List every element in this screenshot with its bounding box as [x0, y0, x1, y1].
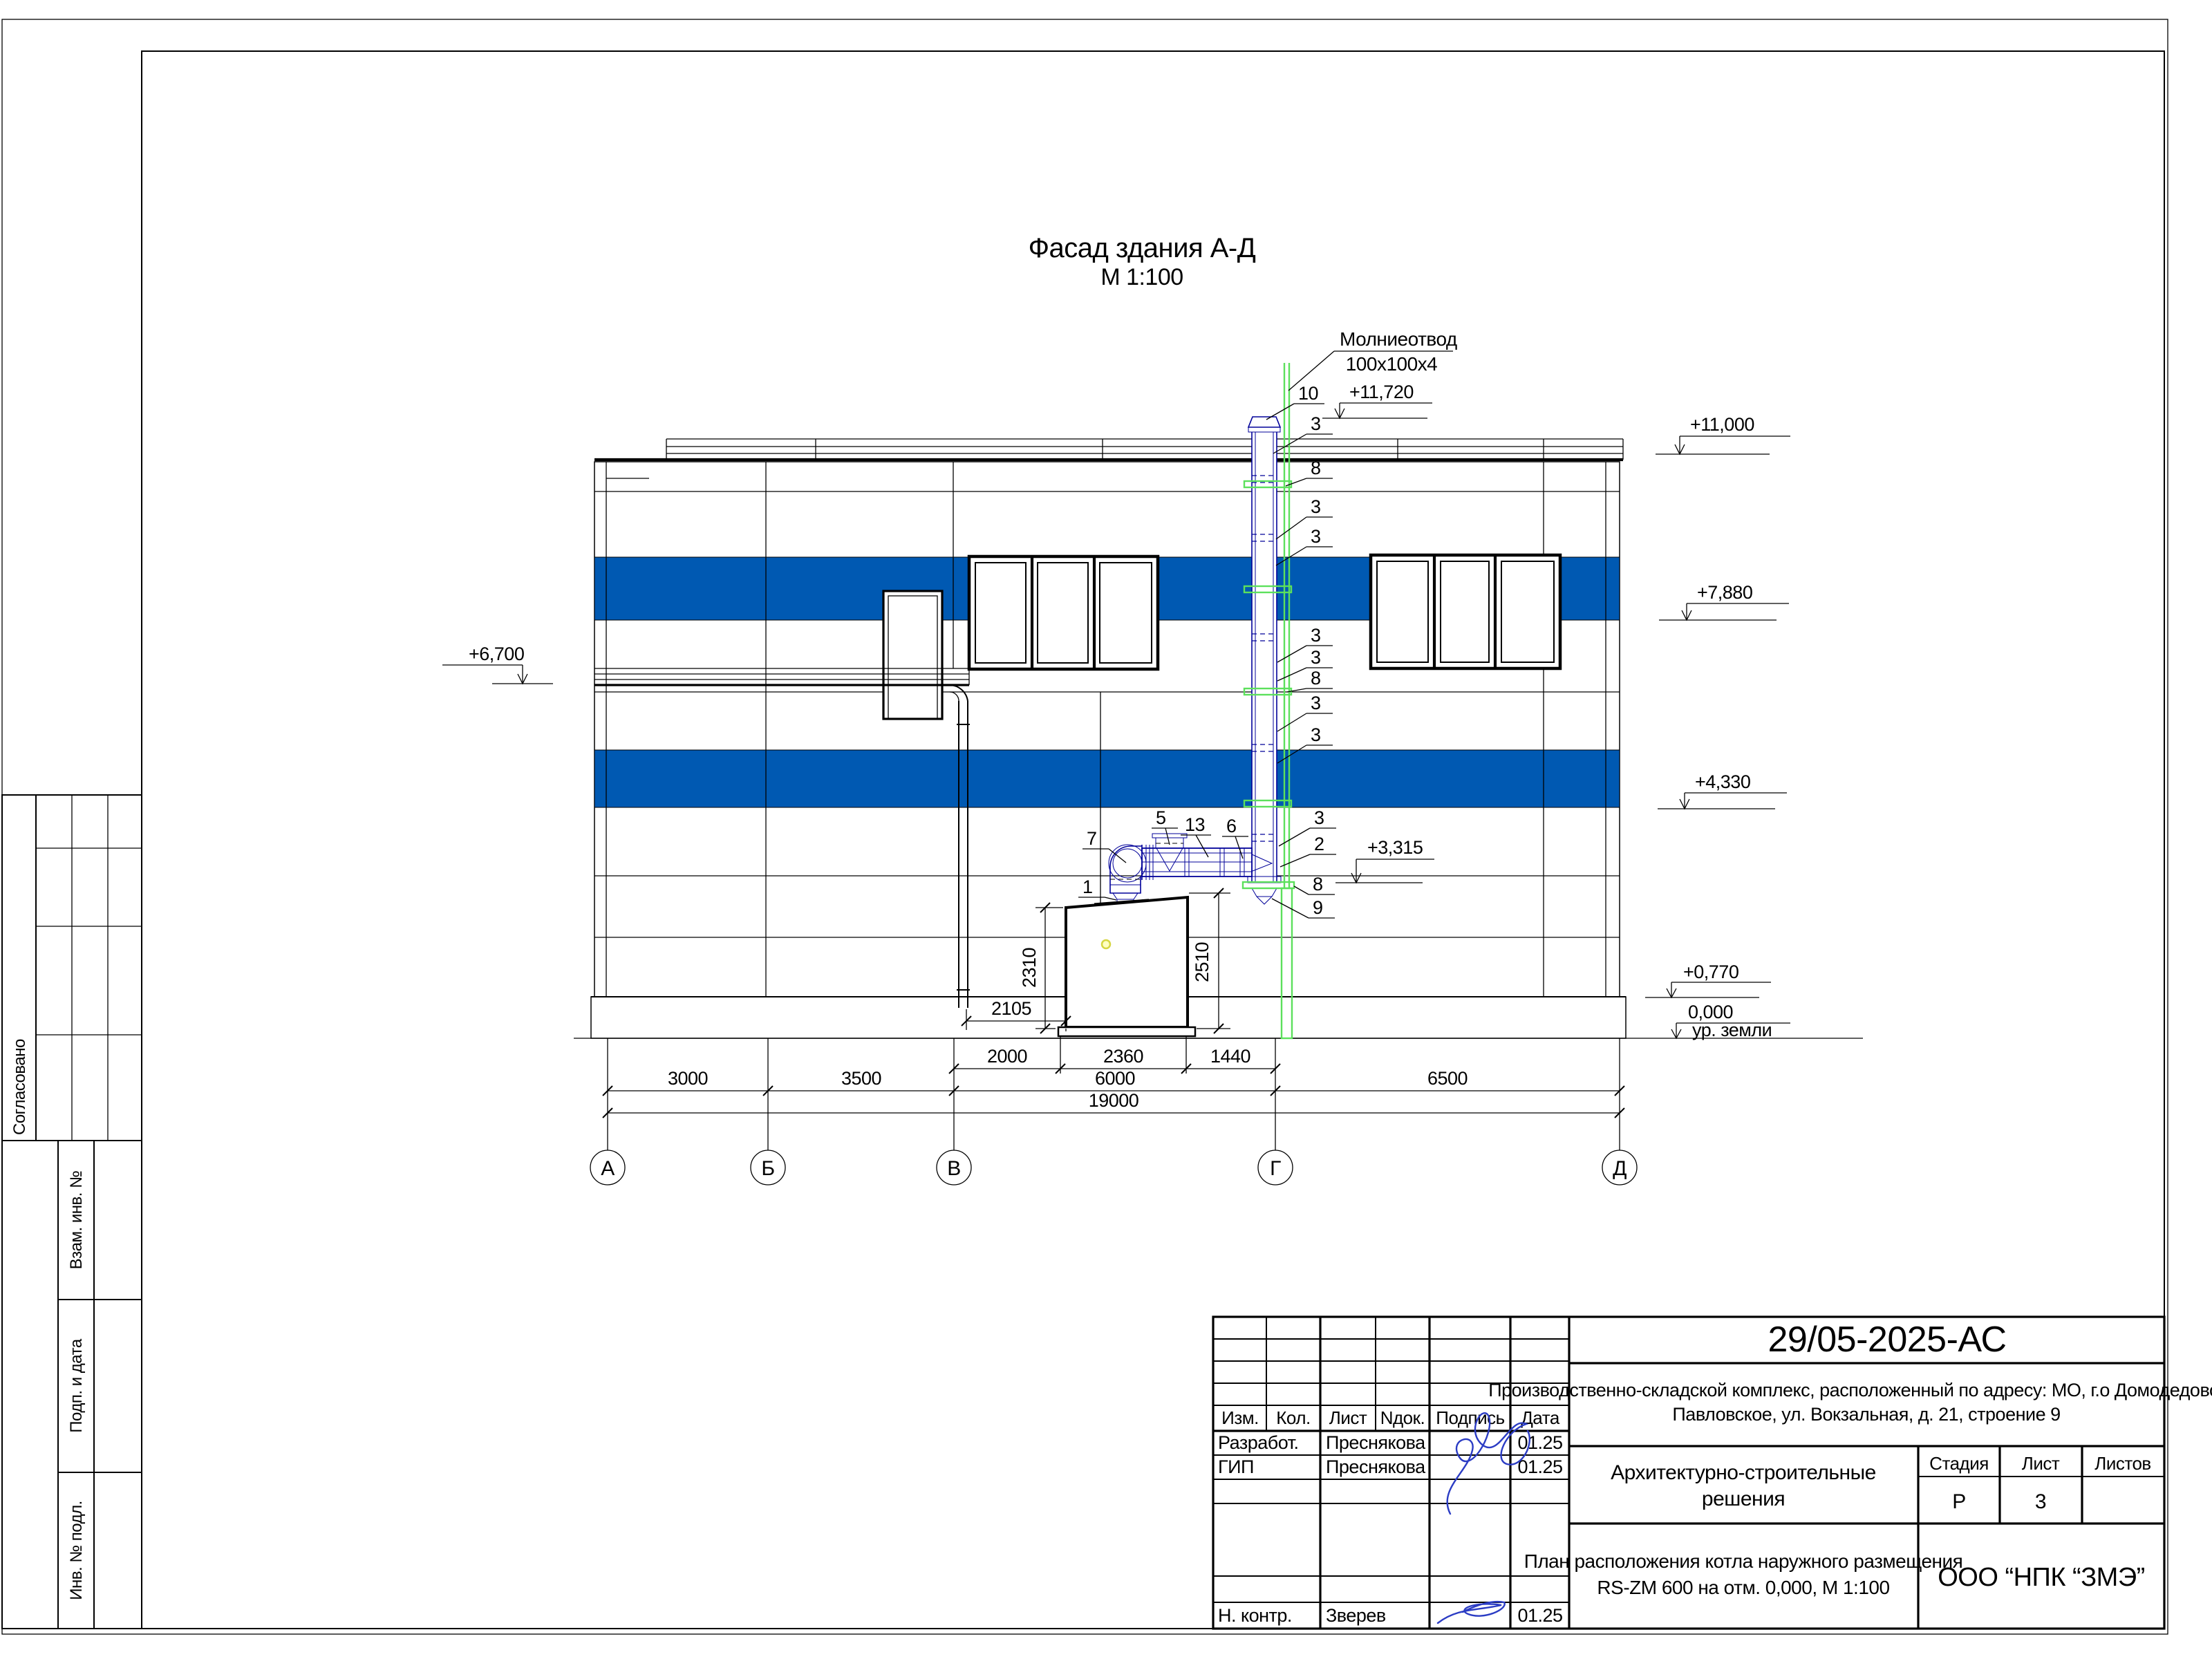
section-title-line2: решения	[1702, 1488, 1785, 1510]
elevation-canopy: +6,700	[442, 644, 553, 684]
side-stamp: Согласовано Взам. инв. № Подп. и дата Ин…	[2, 795, 142, 1629]
project-name-line2: Павловское, ул. Вокзальная, д. 21, строе…	[1672, 1404, 2060, 1425]
callout-label: 3	[1311, 625, 1321, 646]
elevation-roof: +11,000	[1656, 414, 1790, 454]
col-izm: Изм.	[1221, 1407, 1259, 1428]
axis-label-b: Б	[761, 1157, 774, 1180]
signer-date: 01.25	[1517, 1456, 1562, 1477]
ground-label: ур. земли	[1692, 1020, 1772, 1040]
callout-label: 10	[1298, 383, 1318, 404]
dim-value: 2360	[1103, 1046, 1143, 1067]
callout-label: 5	[1156, 807, 1166, 828]
elevation-value: +0,770	[1683, 962, 1738, 982]
callout-label: 3	[1311, 413, 1321, 434]
blue-band-lower	[594, 750, 1620, 807]
signer-date: 01.25	[1517, 1432, 1562, 1453]
elevation-value: +11,720	[1349, 382, 1414, 402]
callout-label: 3	[1311, 693, 1321, 713]
approved-label: Согласовано	[10, 1039, 29, 1135]
elevation-value: +4,330	[1695, 771, 1750, 792]
callout-label: 3	[1311, 647, 1321, 668]
col-list: Лист	[1329, 1407, 1367, 1428]
callout-label: 3	[1311, 526, 1321, 547]
window-group-1	[969, 556, 1158, 669]
drawing-sheet: Согласовано Взам. инв. № Подп. и дата Ин…	[0, 0, 2212, 1659]
dim-value: 2000	[987, 1046, 1027, 1067]
signer-name: Преснякова	[1326, 1432, 1426, 1453]
elevation-chimney-top: +11,720	[1322, 382, 1432, 418]
dim-value: 2105	[991, 998, 1031, 1019]
axis-label-a: А	[601, 1157, 615, 1180]
lightning-rod-label: Молниеотвод	[1340, 328, 1457, 350]
signer-name: Преснякова	[1326, 1456, 1426, 1477]
axis-label-v: В	[947, 1157, 961, 1180]
signer-role: Разработ.	[1218, 1432, 1299, 1453]
callout-label: 3	[1314, 807, 1324, 828]
signer-name: Зверев	[1326, 1605, 1386, 1626]
doc-number: 29/05-2025-АС	[1768, 1320, 2006, 1360]
elevation-band1: +7,880	[1659, 582, 1789, 620]
sheet-title-line2: RS-ZM 600 на отм. 0,000, М 1:100	[1597, 1577, 1889, 1598]
col-data: Дата	[1521, 1407, 1560, 1428]
elevation-value: +11,000	[1690, 414, 1754, 435]
window-group-2	[1371, 555, 1560, 668]
elevation-zero: 0,000 ур. земли	[1671, 1002, 1790, 1040]
title-block: Изм. Кол. Лист Nдок. Подпись Дата Разраб…	[1213, 1317, 2212, 1629]
callout-label: 3	[1311, 724, 1321, 745]
company-name: ООО “НПК “ЗМЭ”	[1938, 1563, 2145, 1592]
signer-date: 01.25	[1517, 1605, 1562, 1626]
axis-label-d: Д	[1613, 1157, 1627, 1180]
col-podpis: Подпись	[1436, 1407, 1504, 1428]
dim-row-3: 19000	[603, 1090, 1624, 1118]
door	[883, 591, 942, 719]
signature-scribble-1	[1447, 1413, 1530, 1514]
dim-value: 3000	[668, 1068, 708, 1089]
project-name-line1: Производственно-складской комплекс, расп…	[1488, 1380, 2212, 1400]
callout-label: 8	[1311, 668, 1321, 688]
sheet-title-line1: План расположения котла наружного размещ…	[1524, 1550, 1963, 1572]
elevation-band2: +4,330	[1658, 771, 1787, 809]
view-scale-text: М 1:100	[1100, 264, 1183, 290]
elevation-value: +7,880	[1697, 582, 1752, 603]
dim-value: 3500	[841, 1068, 881, 1089]
podp-label: Подп. и дата	[67, 1338, 86, 1433]
dim-value: 2510	[1192, 942, 1212, 982]
view-title-text: Фасад здания А-Д	[1029, 233, 1256, 263]
dim-value: 2310	[1019, 948, 1040, 988]
sheet-header: Лист	[2022, 1453, 2060, 1474]
callout-label: 13	[1185, 814, 1205, 835]
vzam-label: Взам. инв. №	[67, 1171, 86, 1270]
axis-label-g: Г	[1270, 1157, 1281, 1180]
elevation-value: +3,315	[1367, 837, 1423, 858]
callout-label: 3	[1311, 496, 1321, 517]
col-kol: Кол.	[1276, 1407, 1310, 1428]
facade-drawing-svg: Согласовано Взам. инв. № Подп. и дата Ин…	[0, 0, 2212, 1659]
signature-scribble-2	[1438, 1602, 1505, 1623]
callout-label: 2	[1314, 834, 1324, 854]
dim-value: 6500	[1427, 1068, 1468, 1089]
callout-3a: 3	[1273, 413, 1333, 453]
axis-markers: А Б В Г Д	[590, 1150, 1637, 1185]
dim-value: 19000	[1089, 1090, 1139, 1111]
signer-role: ГИП	[1218, 1456, 1254, 1477]
dim-value: 1440	[1210, 1046, 1250, 1067]
signer-role: Н. контр.	[1218, 1605, 1292, 1626]
sheet-value: 3	[2035, 1490, 2046, 1513]
callout-label: 9	[1313, 897, 1323, 918]
sheets-header: Листов	[2094, 1453, 2150, 1474]
elevation-value: +6,700	[469, 644, 524, 664]
callout-label: 6	[1226, 816, 1237, 836]
col-ndok: Nдок.	[1380, 1407, 1425, 1428]
callout-label: 7	[1087, 828, 1097, 849]
elevation-plinth: +0,770	[1645, 962, 1771, 997]
callout-label: 8	[1313, 874, 1323, 894]
dim-value: 6000	[1095, 1068, 1135, 1089]
boiler-marker-dot	[1102, 940, 1110, 948]
stage-header: Стадия	[1929, 1453, 1989, 1474]
callout-label: 8	[1311, 458, 1321, 478]
parapet	[594, 439, 1623, 460]
section-title-line1: Архитектурно-строительные	[1611, 1461, 1876, 1484]
view-title: Фасад здания А-Д М 1:100	[1029, 233, 1256, 290]
boiler	[1058, 897, 1195, 1036]
callout-label: 1	[1082, 877, 1093, 897]
lightning-rod-size: 100х100х4	[1346, 353, 1438, 375]
inv-label: Инв. № подл.	[67, 1501, 86, 1600]
stage-value: Р	[1952, 1490, 1966, 1513]
